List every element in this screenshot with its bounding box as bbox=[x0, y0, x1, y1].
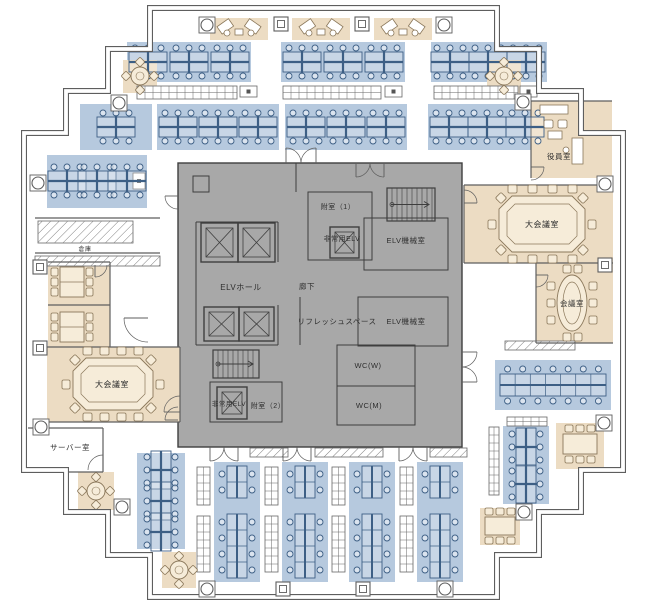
meeting-table bbox=[51, 312, 93, 342]
floor-plan-svg: 附室（1）非常用ELVELV機械室ELVホール廊下リフレッシュスペースELV機械… bbox=[0, 0, 647, 615]
column-marker-circle bbox=[516, 504, 532, 520]
room-label: 非常用ELV bbox=[212, 399, 246, 408]
column-marker-circle bbox=[30, 175, 46, 191]
room-label: 廊下 bbox=[299, 281, 315, 291]
small-label-box bbox=[240, 86, 257, 97]
column-marker-square bbox=[355, 17, 369, 31]
cabinet-run bbox=[265, 467, 278, 505]
column-marker-square bbox=[598, 258, 612, 272]
room-label: サーバー室 bbox=[50, 442, 90, 452]
room-label: 役員室 bbox=[547, 151, 571, 161]
door-arc bbox=[399, 447, 413, 461]
cabinet-run bbox=[265, 516, 278, 572]
room-label: WC(M) bbox=[356, 401, 382, 410]
room-label: 附室（2） bbox=[251, 401, 285, 410]
desk-cluster bbox=[430, 110, 468, 144]
desk-cluster bbox=[468, 110, 506, 144]
cabinet-run bbox=[332, 516, 345, 572]
meeting-table bbox=[563, 425, 597, 463]
desk-cluster bbox=[367, 110, 405, 144]
column-marker-circle bbox=[515, 94, 531, 110]
column-marker-circle bbox=[114, 499, 130, 515]
cabinet-run bbox=[137, 86, 237, 99]
hatched-cabinet-fill bbox=[35, 256, 160, 266]
room-label: 附室（1） bbox=[321, 202, 355, 211]
room-label: 会議室 bbox=[560, 298, 584, 308]
room-label: 大会議室 bbox=[525, 219, 559, 229]
cabinet-run bbox=[400, 516, 413, 572]
meeting-table bbox=[485, 508, 515, 544]
door-arc bbox=[88, 455, 103, 470]
desk-cluster bbox=[199, 110, 237, 144]
room-label: 大会議室 bbox=[95, 379, 129, 389]
small-label-box bbox=[385, 86, 402, 97]
door-arc bbox=[224, 447, 238, 461]
room-label: ELVホール bbox=[220, 283, 262, 292]
hatched-cabinet-fill bbox=[505, 341, 575, 350]
desk-cluster bbox=[287, 110, 325, 144]
column-marker-circle bbox=[33, 419, 49, 435]
cabinet-run bbox=[332, 467, 345, 505]
desk-cluster bbox=[159, 110, 197, 144]
hatched-cabinet-fill bbox=[250, 448, 288, 457]
cabinet-run bbox=[197, 516, 210, 572]
column-marker-circle bbox=[597, 176, 613, 192]
column-marker-circle bbox=[111, 95, 127, 111]
desk-cluster bbox=[327, 110, 365, 144]
door-arc bbox=[413, 447, 427, 461]
door-arc bbox=[301, 148, 316, 163]
door-arc bbox=[286, 148, 301, 163]
room-label: ELV機械室 bbox=[386, 316, 425, 326]
desk-cluster bbox=[365, 45, 403, 79]
door-arc bbox=[462, 367, 477, 382]
desk-cluster bbox=[211, 45, 249, 79]
desk-cluster bbox=[108, 164, 146, 198]
door-arc bbox=[210, 447, 224, 461]
desk-cluster bbox=[506, 110, 544, 144]
hatched-cabinet-fill bbox=[430, 448, 467, 457]
column-marker-circle bbox=[199, 17, 215, 33]
elevator-icon bbox=[239, 307, 274, 341]
column-marker-circle bbox=[199, 581, 215, 597]
column-marker-square bbox=[274, 17, 288, 31]
door-arc bbox=[124, 318, 148, 342]
desk-cluster bbox=[170, 45, 208, 79]
desk-cluster bbox=[509, 465, 543, 503]
floor-plan: 附室（1）非常用ELVELV機械室ELVホール廊下リフレッシュスペースELV機械… bbox=[0, 0, 647, 615]
room-label: 倉庫 bbox=[78, 245, 91, 253]
desk-cluster bbox=[283, 45, 321, 79]
meeting-table bbox=[51, 267, 93, 297]
cabinet-run bbox=[283, 86, 381, 99]
column-marker-circle bbox=[437, 581, 453, 597]
column-marker-circle bbox=[436, 17, 452, 33]
cabinet-run bbox=[400, 467, 413, 505]
cabinet-run bbox=[197, 467, 210, 505]
desk-cluster bbox=[509, 428, 543, 466]
column-marker-square bbox=[33, 341, 47, 355]
room-label: WC(W) bbox=[354, 361, 381, 370]
desk-cluster bbox=[239, 110, 277, 144]
hatched-cabinet-fill bbox=[38, 221, 133, 243]
desk-cluster bbox=[431, 45, 469, 79]
room-label: 非常用ELV bbox=[324, 234, 361, 243]
column-marker-square bbox=[33, 260, 47, 274]
room-label: ELV機械室 bbox=[386, 235, 425, 245]
cabinet-run bbox=[507, 417, 547, 426]
elevator-icon bbox=[204, 307, 239, 341]
column-marker-circle bbox=[596, 415, 612, 431]
desk-cluster bbox=[97, 110, 135, 144]
cabinet-run bbox=[489, 427, 499, 495]
hatched-cabinet-fill bbox=[315, 448, 383, 457]
door-arc bbox=[165, 196, 178, 209]
door-arc bbox=[462, 352, 477, 367]
column-marker-square bbox=[276, 582, 290, 596]
door-arc bbox=[297, 447, 311, 461]
room-label: リフレッシュスペース bbox=[297, 317, 376, 326]
column-marker-square bbox=[356, 582, 370, 596]
desk-cluster bbox=[324, 45, 362, 79]
desk-cluster bbox=[144, 513, 178, 551]
